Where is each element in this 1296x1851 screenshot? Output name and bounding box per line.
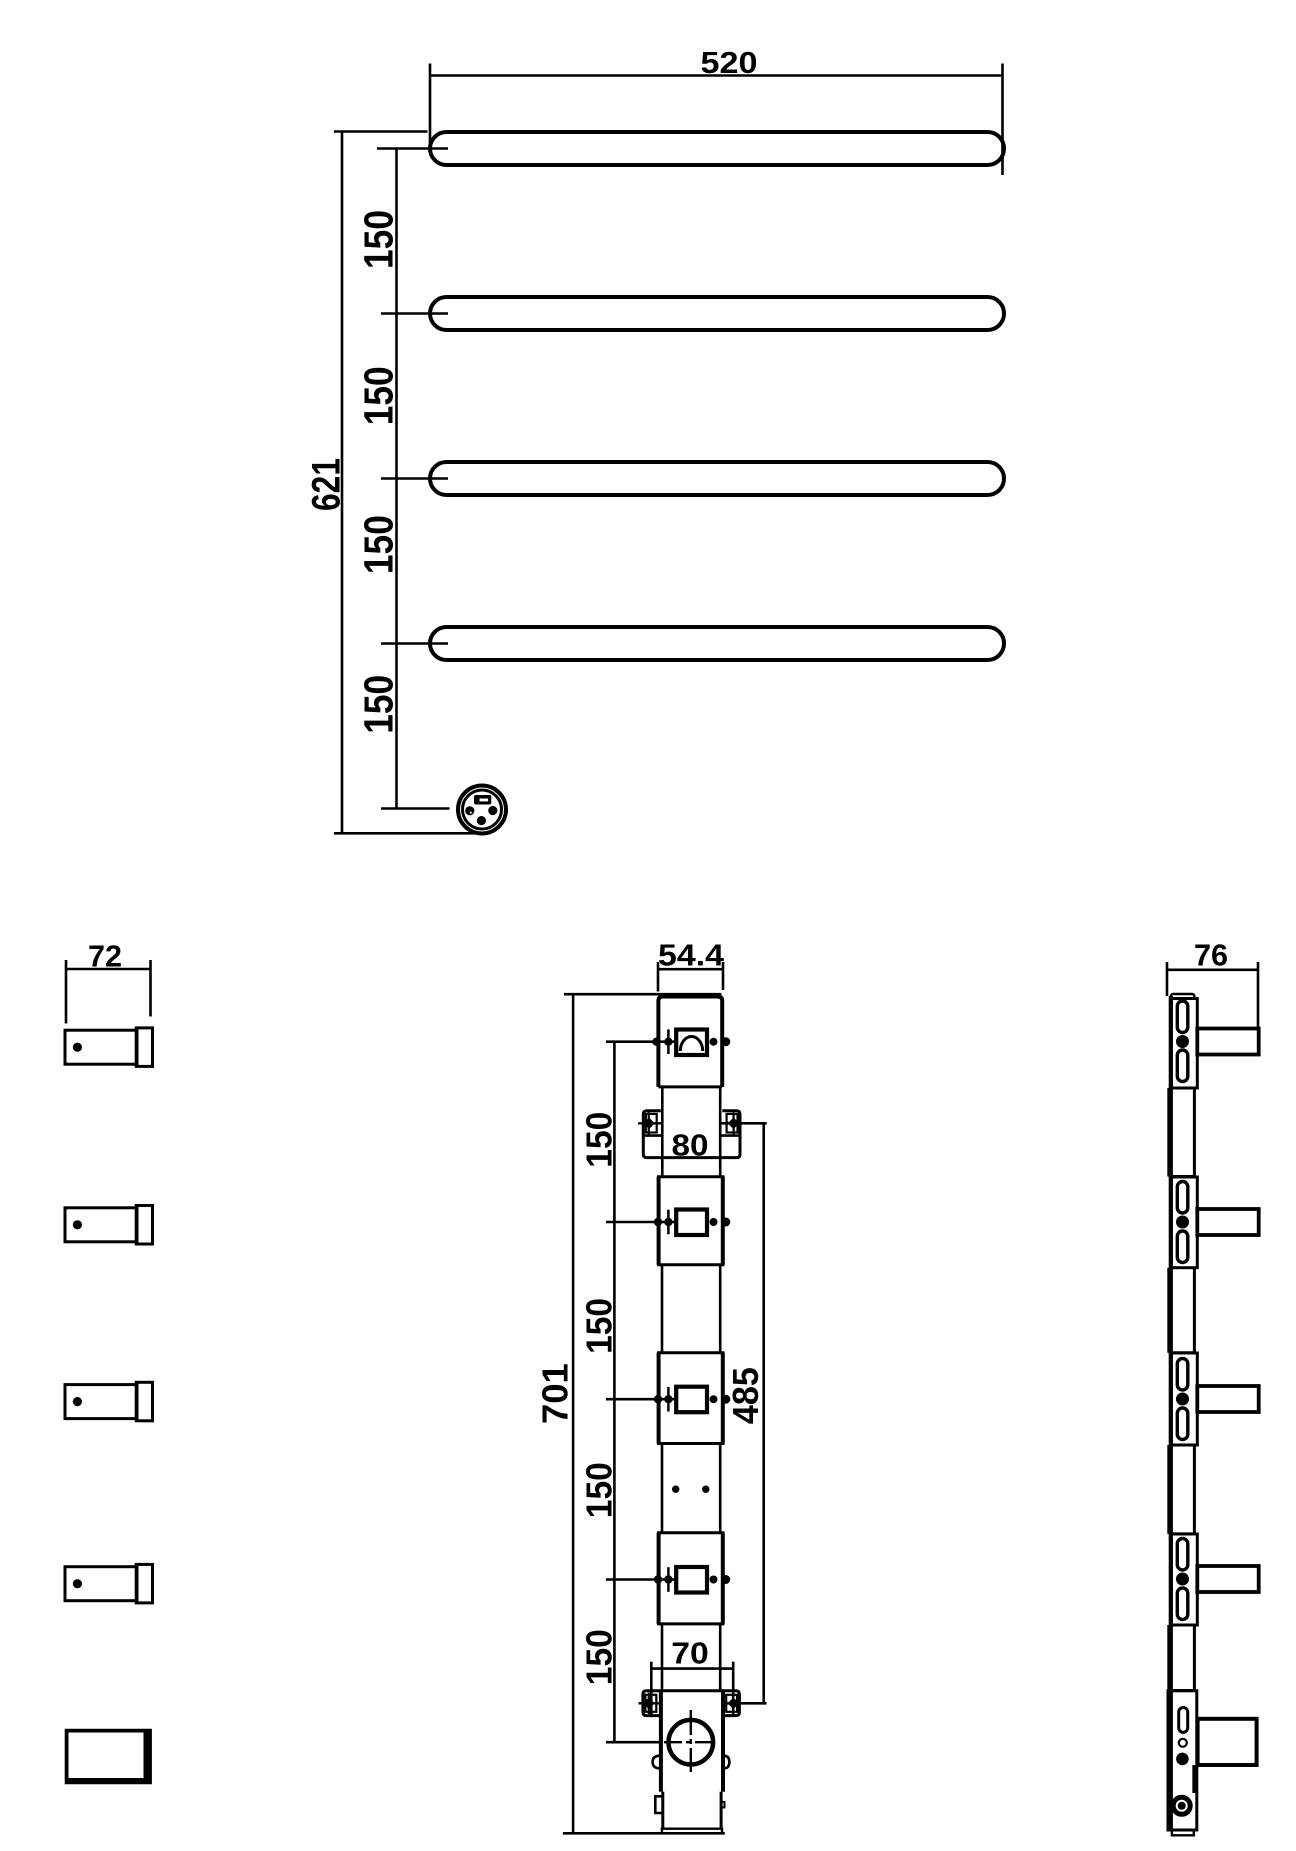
svg-text:150: 150 [579, 1298, 620, 1354]
svg-text:150: 150 [356, 515, 402, 574]
svg-text:701: 701 [535, 1363, 576, 1424]
svg-text:485: 485 [725, 1367, 766, 1424]
svg-text:150: 150 [356, 366, 402, 425]
svg-text:72: 72 [88, 939, 122, 974]
svg-text:150: 150 [579, 1112, 620, 1168]
svg-text:150: 150 [579, 1462, 620, 1518]
svg-text:80: 80 [672, 1128, 709, 1163]
svg-text:70: 70 [671, 1636, 709, 1671]
svg-text:520: 520 [701, 45, 758, 80]
svg-text:621: 621 [305, 458, 349, 511]
svg-text:150: 150 [356, 675, 402, 734]
svg-text:150: 150 [356, 210, 402, 269]
svg-text:150: 150 [579, 1629, 620, 1685]
svg-text:54.4: 54.4 [658, 938, 725, 973]
svg-text:76: 76 [1194, 938, 1228, 973]
